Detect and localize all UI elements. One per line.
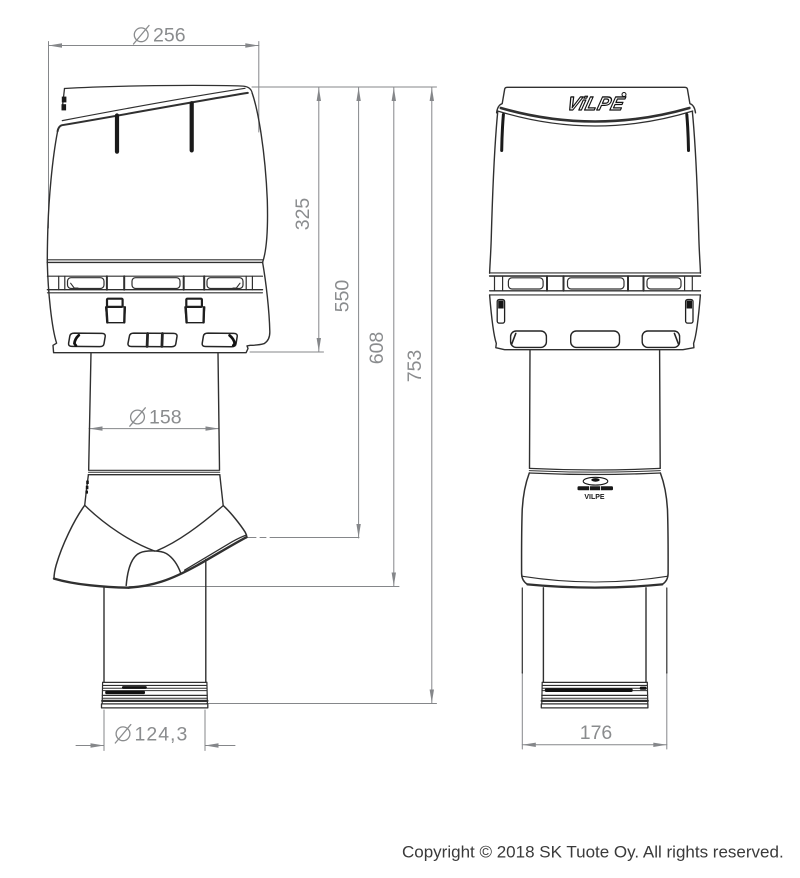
svg-text:550: 550 — [332, 280, 354, 313]
svg-text:608: 608 — [366, 332, 388, 365]
svg-text:Copyright © 2018 SK Tuote Oy.: Copyright © 2018 SK Tuote Oy. All rights… — [402, 843, 784, 862]
svg-text:176: 176 — [580, 722, 613, 744]
svg-text:256: 256 — [153, 25, 186, 47]
svg-text:158: 158 — [149, 407, 182, 429]
svg-text:VILPE: VILPE — [584, 494, 605, 501]
svg-text:325: 325 — [292, 198, 314, 231]
svg-text:124,3: 124,3 — [135, 724, 189, 746]
svg-text:753: 753 — [404, 350, 426, 383]
svg-text:ViLPE: ViLPE — [565, 94, 627, 115]
